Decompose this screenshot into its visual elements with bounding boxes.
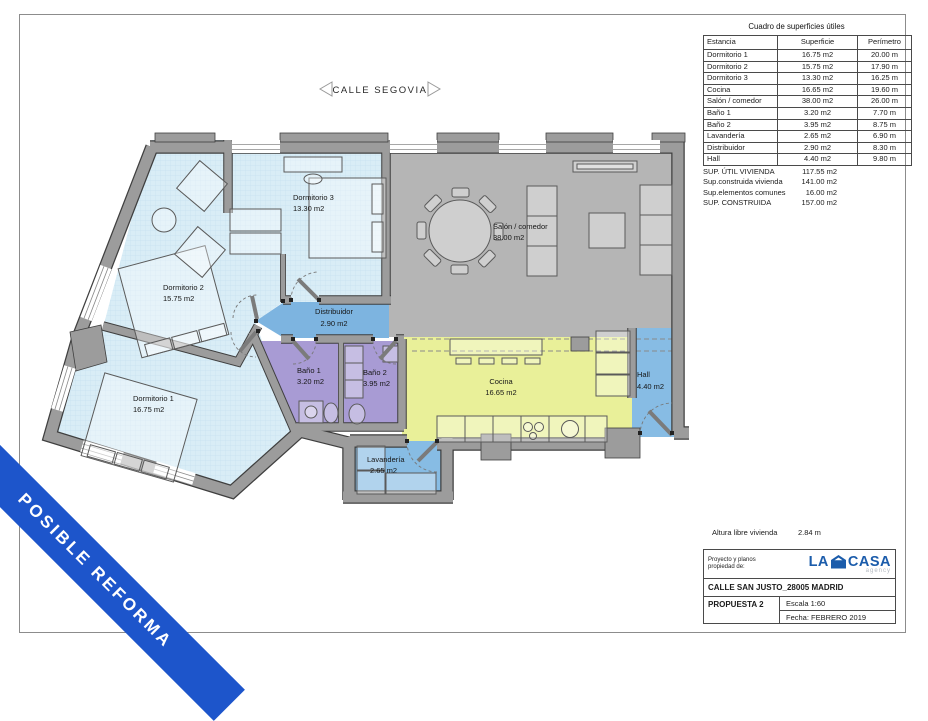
title-block: Proyecto y planos propiedad de: LA CASA … xyxy=(703,549,896,624)
cell-perimeter: 7.70 m xyxy=(858,107,912,119)
cell-perimeter: 20.00 m xyxy=(858,50,912,62)
cell-room: Hall xyxy=(704,154,778,166)
lacasa-logo: LA CASA agency xyxy=(782,555,891,574)
label-bano-1: Baño 1 xyxy=(297,366,321,375)
proposal-label: PROPUESTA 2 xyxy=(704,597,780,623)
cell-room: Lavandería xyxy=(704,131,778,143)
summary-label: SUP. ÚTIL VIVIENDA xyxy=(703,167,795,177)
label-salon-area: 38.00 m2 xyxy=(493,233,524,242)
logo-word-la: LA xyxy=(809,555,829,569)
summary-line: SUP. ÚTIL VIVIENDA117.55 m2 xyxy=(703,167,853,177)
label-bano-2: Baño 2 xyxy=(363,368,387,377)
street-label-group: CALLE SEGOVIA xyxy=(320,82,440,96)
cell-perimeter: 16.25 m xyxy=(858,73,912,85)
cell-area: 38.00 m2 xyxy=(778,96,858,108)
label-hall-area: 4.40 m2 xyxy=(637,382,664,391)
date-label: Fecha: FEBRERO 2019 xyxy=(780,611,895,624)
table-row: Salón / comedor38.00 m226.00 m xyxy=(704,96,912,108)
cell-room: Cocina xyxy=(704,84,778,96)
col-header-estancia: Estancia xyxy=(704,36,778,50)
cell-perimeter: 8.75 m xyxy=(858,119,912,131)
table-row: Dormitorio 116.75 m220.00 m xyxy=(704,50,912,62)
cell-area: 4.40 m2 xyxy=(778,154,858,166)
ownership-label: Proyecto y planos propiedad de: xyxy=(708,557,782,571)
table-row: Distribuidor2.90 m28.30 m xyxy=(704,142,912,154)
cell-area: 3.20 m2 xyxy=(778,107,858,119)
cell-room: Salón / comedor xyxy=(704,96,778,108)
table-row: Cocina16.65 m219.60 m xyxy=(704,84,912,96)
arrow-left-icon xyxy=(320,82,332,96)
label-cocina-area: 16.65 m2 xyxy=(485,388,516,397)
logo-agency-text: agency xyxy=(866,568,891,574)
cell-room: Distribuidor xyxy=(704,142,778,154)
ceiling-height-note: Altura libre vivienda 2.84 m xyxy=(712,528,821,537)
logo-word-casa: CASA xyxy=(848,555,891,569)
cell-area: 16.65 m2 xyxy=(778,84,858,96)
kitchen-cabinets xyxy=(596,331,630,396)
cell-area: 13.30 m2 xyxy=(778,73,858,85)
summary-value: 117.55 m2 xyxy=(795,167,837,177)
label-bano-1-area: 3.20 m2 xyxy=(297,377,324,386)
col-header-superficie: Superficie xyxy=(778,36,858,50)
cell-perimeter: 9.80 m xyxy=(858,154,912,166)
cell-room: Baño 1 xyxy=(704,107,778,119)
summary-value: 157.00 m2 xyxy=(795,198,837,208)
cell-area: 2.90 m2 xyxy=(778,142,858,154)
summary-value: 16.00 m2 xyxy=(795,188,837,198)
cell-perimeter: 6.90 m xyxy=(858,131,912,143)
cell-area: 16.75 m2 xyxy=(778,50,858,62)
tv-unit xyxy=(573,161,637,172)
summary-value: 141.00 m2 xyxy=(795,177,837,187)
arrow-right-icon xyxy=(428,82,440,96)
cell-area: 15.75 m2 xyxy=(778,61,858,73)
surface-table-title: Cuadro de superficies útiles xyxy=(703,22,890,31)
cell-area: 2.65 m2 xyxy=(778,131,858,143)
label-cocina: Cocina xyxy=(489,377,513,386)
cell-room: Baño 2 xyxy=(704,119,778,131)
coffee-table xyxy=(589,213,625,248)
kitchen-counter xyxy=(437,416,607,442)
label-dormitorio-3-area: 13.30 m2 xyxy=(293,204,324,213)
dining-table xyxy=(417,188,503,274)
height-label: Altura libre vivienda xyxy=(712,528,798,537)
table-row: Baño 13.20 m27.70 m xyxy=(704,107,912,119)
label-bano-2-area: 3.95 m2 xyxy=(363,379,390,388)
summary-line: Sup.elementos comunes16.00 m2 xyxy=(703,188,853,198)
label-hall: Hall xyxy=(637,370,650,379)
table-row: Baño 23.95 m28.75 m xyxy=(704,119,912,131)
scale-label: Escala 1:60 xyxy=(780,597,895,611)
label-salon: Salón / comedor xyxy=(493,222,548,231)
cell-room: Dormitorio 2 xyxy=(704,61,778,73)
project-address: CALLE SAN JUSTO_28005 MADRID xyxy=(704,578,895,596)
label-dormitorio-3: Dormitorio 3 xyxy=(293,193,334,202)
summary-label: Sup.construida vivienda xyxy=(703,177,795,187)
summary-line: SUP. CONSTRUIDA157.00 m2 xyxy=(703,198,853,208)
lacasa-house-icon xyxy=(831,555,846,569)
label-lavanderia: Lavandería xyxy=(367,455,405,464)
surface-summary: SUP. ÚTIL VIVIENDA117.55 m2 Sup.construi… xyxy=(703,167,853,208)
cell-room: Dormitorio 3 xyxy=(704,73,778,85)
table-row: Dormitorio 313.30 m216.25 m xyxy=(704,73,912,85)
cell-perimeter: 17.90 m xyxy=(858,61,912,73)
label-dormitorio-2: Dormitorio 2 xyxy=(163,283,204,292)
cell-perimeter: 19.60 m xyxy=(858,84,912,96)
label-dormitorio-1-area: 16.75 m2 xyxy=(133,405,164,414)
summary-label: SUP. CONSTRUIDA xyxy=(703,198,795,208)
summary-line: Sup.construida vivienda141.00 m2 xyxy=(703,177,853,187)
cell-room: Dormitorio 1 xyxy=(704,50,778,62)
label-distribuidor: Distribuidor xyxy=(315,307,353,316)
bed-dorm3 xyxy=(309,178,386,258)
table-header-row: Estancia Superficie Perímetro xyxy=(704,36,912,50)
street-name: CALLE SEGOVIA xyxy=(332,85,427,96)
height-value: 2.84 m xyxy=(798,528,821,537)
table-row: Lavandería2.65 m26.90 m xyxy=(704,131,912,143)
surface-table-grid: Estancia Superficie Perímetro Dormitorio… xyxy=(703,35,912,166)
proposal-row: PROPUESTA 2 Escala 1:60 Fecha: FEBRERO 2… xyxy=(704,596,895,623)
label-distribuidor-area: 2.90 m2 xyxy=(320,319,347,328)
surface-table: Cuadro de superficies útiles Estancia Su… xyxy=(703,22,890,166)
table-row: Hall4.40 m29.80 m xyxy=(704,154,912,166)
cell-area: 3.95 m2 xyxy=(778,119,858,131)
label-dormitorio-2-area: 15.75 m2 xyxy=(163,294,194,303)
table-row: Dormitorio 215.75 m217.90 m xyxy=(704,61,912,73)
col-header-perimetro: Perímetro xyxy=(858,36,912,50)
cell-perimeter: 26.00 m xyxy=(858,96,912,108)
label-lavanderia-area: 2.65 m2 xyxy=(370,466,397,475)
label-dormitorio-1: Dormitorio 1 xyxy=(133,394,174,403)
ownership-row: Proyecto y planos propiedad de: LA CASA … xyxy=(704,550,895,578)
cell-perimeter: 8.30 m xyxy=(858,142,912,154)
summary-label: Sup.elementos comunes xyxy=(703,188,795,198)
